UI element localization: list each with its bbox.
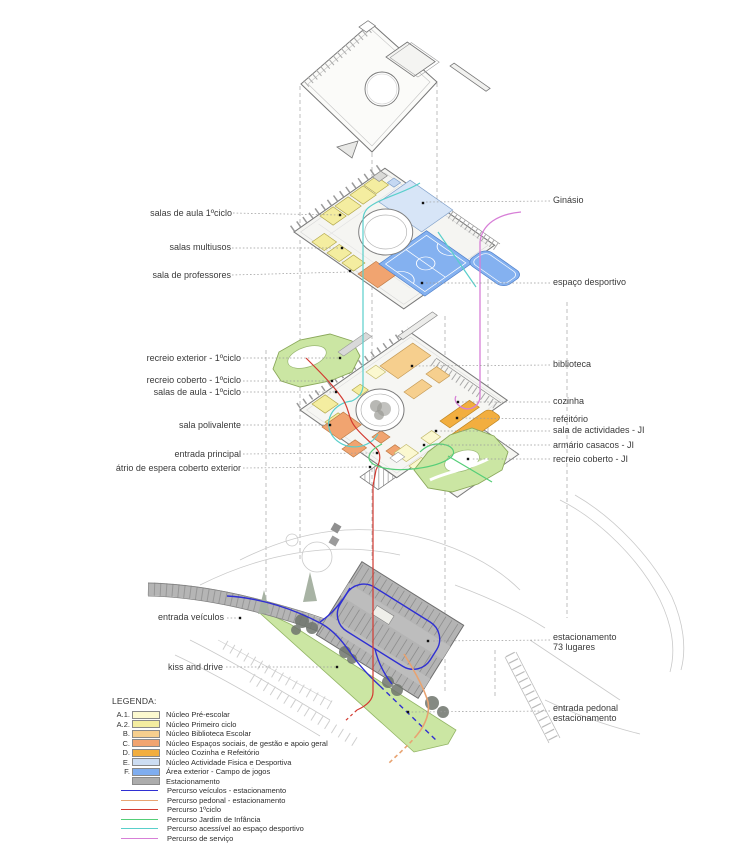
legend-heading: LEGENDA: <box>112 696 328 706</box>
label-sala-polivalente: sala polivalente <box>179 420 241 430</box>
color-swatch <box>132 739 160 747</box>
label-salas-de-aula-1ciclo: salas de aula 1ºciclo <box>150 208 232 218</box>
legend-row-percurso-acessivel: Percurso acessível ao espaço desportivo <box>112 824 328 833</box>
legend-row-percurso-ji: Percurso Jardim de Infância <box>112 815 328 824</box>
label-ginasio: Ginásio <box>553 195 584 205</box>
upper-courtyard <box>359 209 413 255</box>
detached-roof-bar <box>450 63 490 91</box>
legend-row-area-exterior: F. Área exterior - Campo de jogos <box>112 767 328 776</box>
color-swatch <box>132 749 160 757</box>
label-recreio-coberto: recreio coberto - 1ºciclo <box>147 375 241 385</box>
roof-plan <box>301 21 490 158</box>
legend-row-percurso-veiculos: Percurso veículos - estacionamento <box>112 786 328 795</box>
roof-canopy-tip <box>337 141 358 158</box>
route-line-sample <box>121 800 158 801</box>
color-swatch <box>132 768 160 776</box>
detached-canopy <box>398 312 437 340</box>
label-entrada-veiculos: entrada veículos <box>158 612 224 622</box>
label-atrio-espera: átrio de espera coberto exterior <box>116 463 241 473</box>
legend-row-cozinha: D. Núcleo Cozinha e Refeitório <box>112 748 328 757</box>
label-entrada-principal: entrada principal <box>174 449 241 459</box>
label-salas-multiusos: salas multiusos <box>169 242 231 252</box>
legend-row-percurso-1ciclo: Percurso 1ºciclo <box>112 805 328 814</box>
site-building-block <box>329 536 340 547</box>
color-swatch <box>132 758 160 766</box>
central-atrium <box>356 389 404 431</box>
color-swatch <box>132 730 160 738</box>
color-swatch <box>132 711 160 719</box>
color-swatch <box>132 777 160 785</box>
label-armario-casacos-ji: armário casacos - JI <box>553 440 634 450</box>
legend-row-espacos-sociais: C. Núcleo Espaços sociais, de gestão e a… <box>112 739 328 748</box>
route-line-sample <box>121 790 158 791</box>
exploded-axonometric-diagram: salas de aula 1ºciclo salas multiusos sa… <box>0 0 748 859</box>
legend-row-percurso-pedonal: Percurso pedonal - estacionamento <box>112 796 328 805</box>
color-swatch <box>132 720 160 728</box>
label-kiss-and-drive: kiss and drive <box>168 662 223 672</box>
route-line-sample <box>121 809 158 810</box>
legend-row-percurso-servico: Percurso de serviço <box>112 834 328 843</box>
label-sala-actividades-ji: sala de actividades - JI <box>553 425 645 435</box>
label-salas-de-aula: salas de aula - 1ºciclo <box>154 387 241 397</box>
legend-row-estacionamento: Estacionamento <box>112 777 328 786</box>
label-biblioteca: biblioteca <box>553 359 591 369</box>
label-estacionamento-73: estacionamento 73 lugares <box>553 632 617 652</box>
label-entrada-pedonal: entrada pedonal estacionamento <box>553 703 618 723</box>
site-building-block <box>331 523 342 534</box>
label-sala-de-professores: sala de professores <box>152 270 231 280</box>
legend-row-preescolar: A.1. Núcleo Pré-escolar <box>112 710 328 719</box>
label-cozinha: cozinha <box>553 396 584 406</box>
pedestrian-stairs <box>505 652 560 743</box>
label-recreio-coberto-ji: recreio coberto - JI <box>553 454 628 464</box>
upper-floor-plan <box>292 165 523 309</box>
route-line-sample <box>121 838 158 839</box>
label-refeitorio: refeitório <box>553 414 588 424</box>
legend: LEGENDA: A.1. Núcleo Pré-escolar A.2. Nú… <box>112 696 328 843</box>
legend-row-biblioteca: B. Núcleo Biblioteca Escolar <box>112 729 328 738</box>
route-line-sample <box>121 819 158 820</box>
legend-row-actividade-fisica: E. Núcleo Actividade Fisica e Desportiva <box>112 758 328 767</box>
label-recreio-exterior: recreio exterior - 1ºciclo <box>147 353 241 363</box>
roof-skylight <box>365 72 399 106</box>
label-espaco-desportivo: espaço desportivo <box>553 277 626 287</box>
legend-row-primeiro-ciclo: A.2. Núcleo Primeiro ciclo <box>112 720 328 729</box>
ground-floor-plan <box>273 312 551 509</box>
route-line-sample <box>121 828 158 829</box>
